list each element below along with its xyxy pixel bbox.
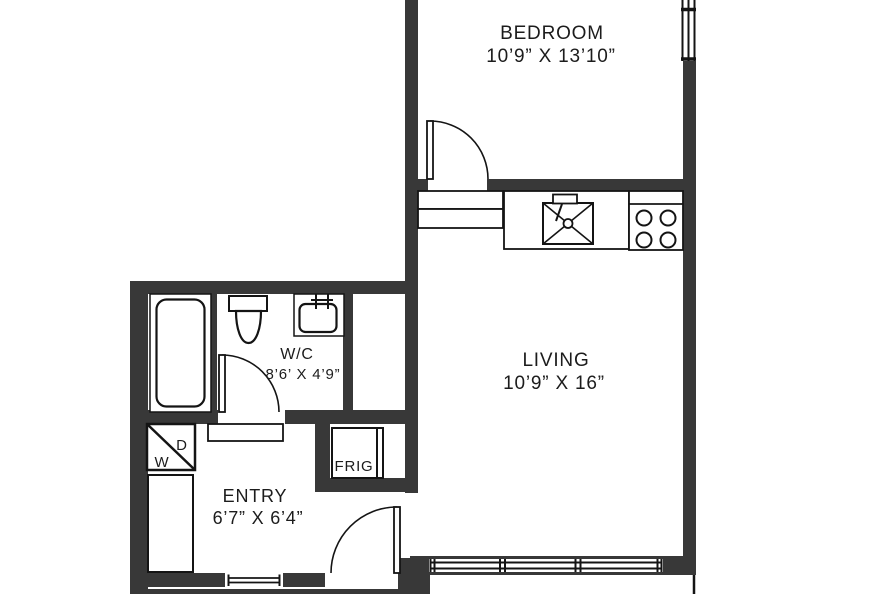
floor-plan-svg: BEDROOM 10’9” X 13’10” LIVING 10’9” X 16…	[0, 0, 875, 594]
wall-tub-divider	[211, 294, 217, 412]
stove-burner-top-right	[661, 211, 676, 226]
living-name-label: LIVING	[522, 350, 589, 371]
kitchen-faucet-base	[553, 195, 577, 204]
bathtub-icon	[150, 294, 211, 412]
living-dimensions-label: 10’9” X 16”	[503, 373, 605, 394]
entry-shelf	[208, 424, 283, 441]
bedroom-name-label: BEDROOM	[500, 23, 604, 44]
entry-dimensions-label: 6’7” X 6’4”	[213, 508, 304, 528]
wc-sink-icon	[294, 294, 344, 336]
wall-bedroom-bottom	[487, 179, 683, 192]
bathtub-surround	[150, 294, 211, 412]
stove-icon	[629, 191, 683, 250]
wall-wc-top	[130, 281, 418, 294]
wall-right-exterior	[683, 0, 696, 575]
wc-door-leaf	[219, 355, 225, 412]
entry-window-glass	[225, 575, 283, 587]
fridge-label: FRIG	[334, 458, 373, 475]
dryer-label: D	[176, 437, 188, 454]
living-window-glass	[429, 559, 663, 572]
entry-name-label: ENTRY	[223, 486, 288, 506]
wall-fridge-niche-bottom	[315, 478, 418, 492]
wall-bottom-band	[130, 589, 430, 594]
bedroom-right-window-icon	[681, 0, 696, 61]
wc-sink-basin	[300, 304, 337, 332]
stove-burner-bottom-left	[637, 233, 652, 248]
wc-dimensions-label: 8’6’ X 4’9”	[266, 366, 341, 383]
washer-label: W	[155, 454, 170, 471]
living-bottom-windows-icon	[429, 559, 663, 572]
kitchen-sink-drain	[564, 219, 573, 228]
wall-bedroom-bottom-stub	[418, 179, 428, 192]
wall-entry-top-right	[285, 410, 418, 424]
floor-plan: BEDROOM 10’9” X 13’10” LIVING 10’9” X 16…	[0, 0, 875, 594]
kitchen-passthrough-counter-bottom	[418, 209, 503, 228]
bedroom-dimensions-label: 10’9” X 13’10”	[486, 46, 616, 67]
bedroom-door-leaf	[427, 121, 433, 179]
wall-left-exterior	[130, 281, 148, 594]
stove-burner-bottom-right	[661, 233, 676, 248]
entry-bottom-window-icon	[225, 575, 283, 587]
stove-burner-top-left	[637, 211, 652, 226]
entry-closet	[148, 475, 193, 572]
toilet-tank	[229, 296, 267, 311]
wall-entry-bottom-right	[283, 573, 325, 587]
wc-name-label: W/C	[280, 346, 314, 363]
entry-door-leaf	[394, 507, 400, 573]
kitchen-passthrough-counter-top	[418, 191, 503, 209]
wall-entry-bottom-left	[130, 573, 225, 587]
